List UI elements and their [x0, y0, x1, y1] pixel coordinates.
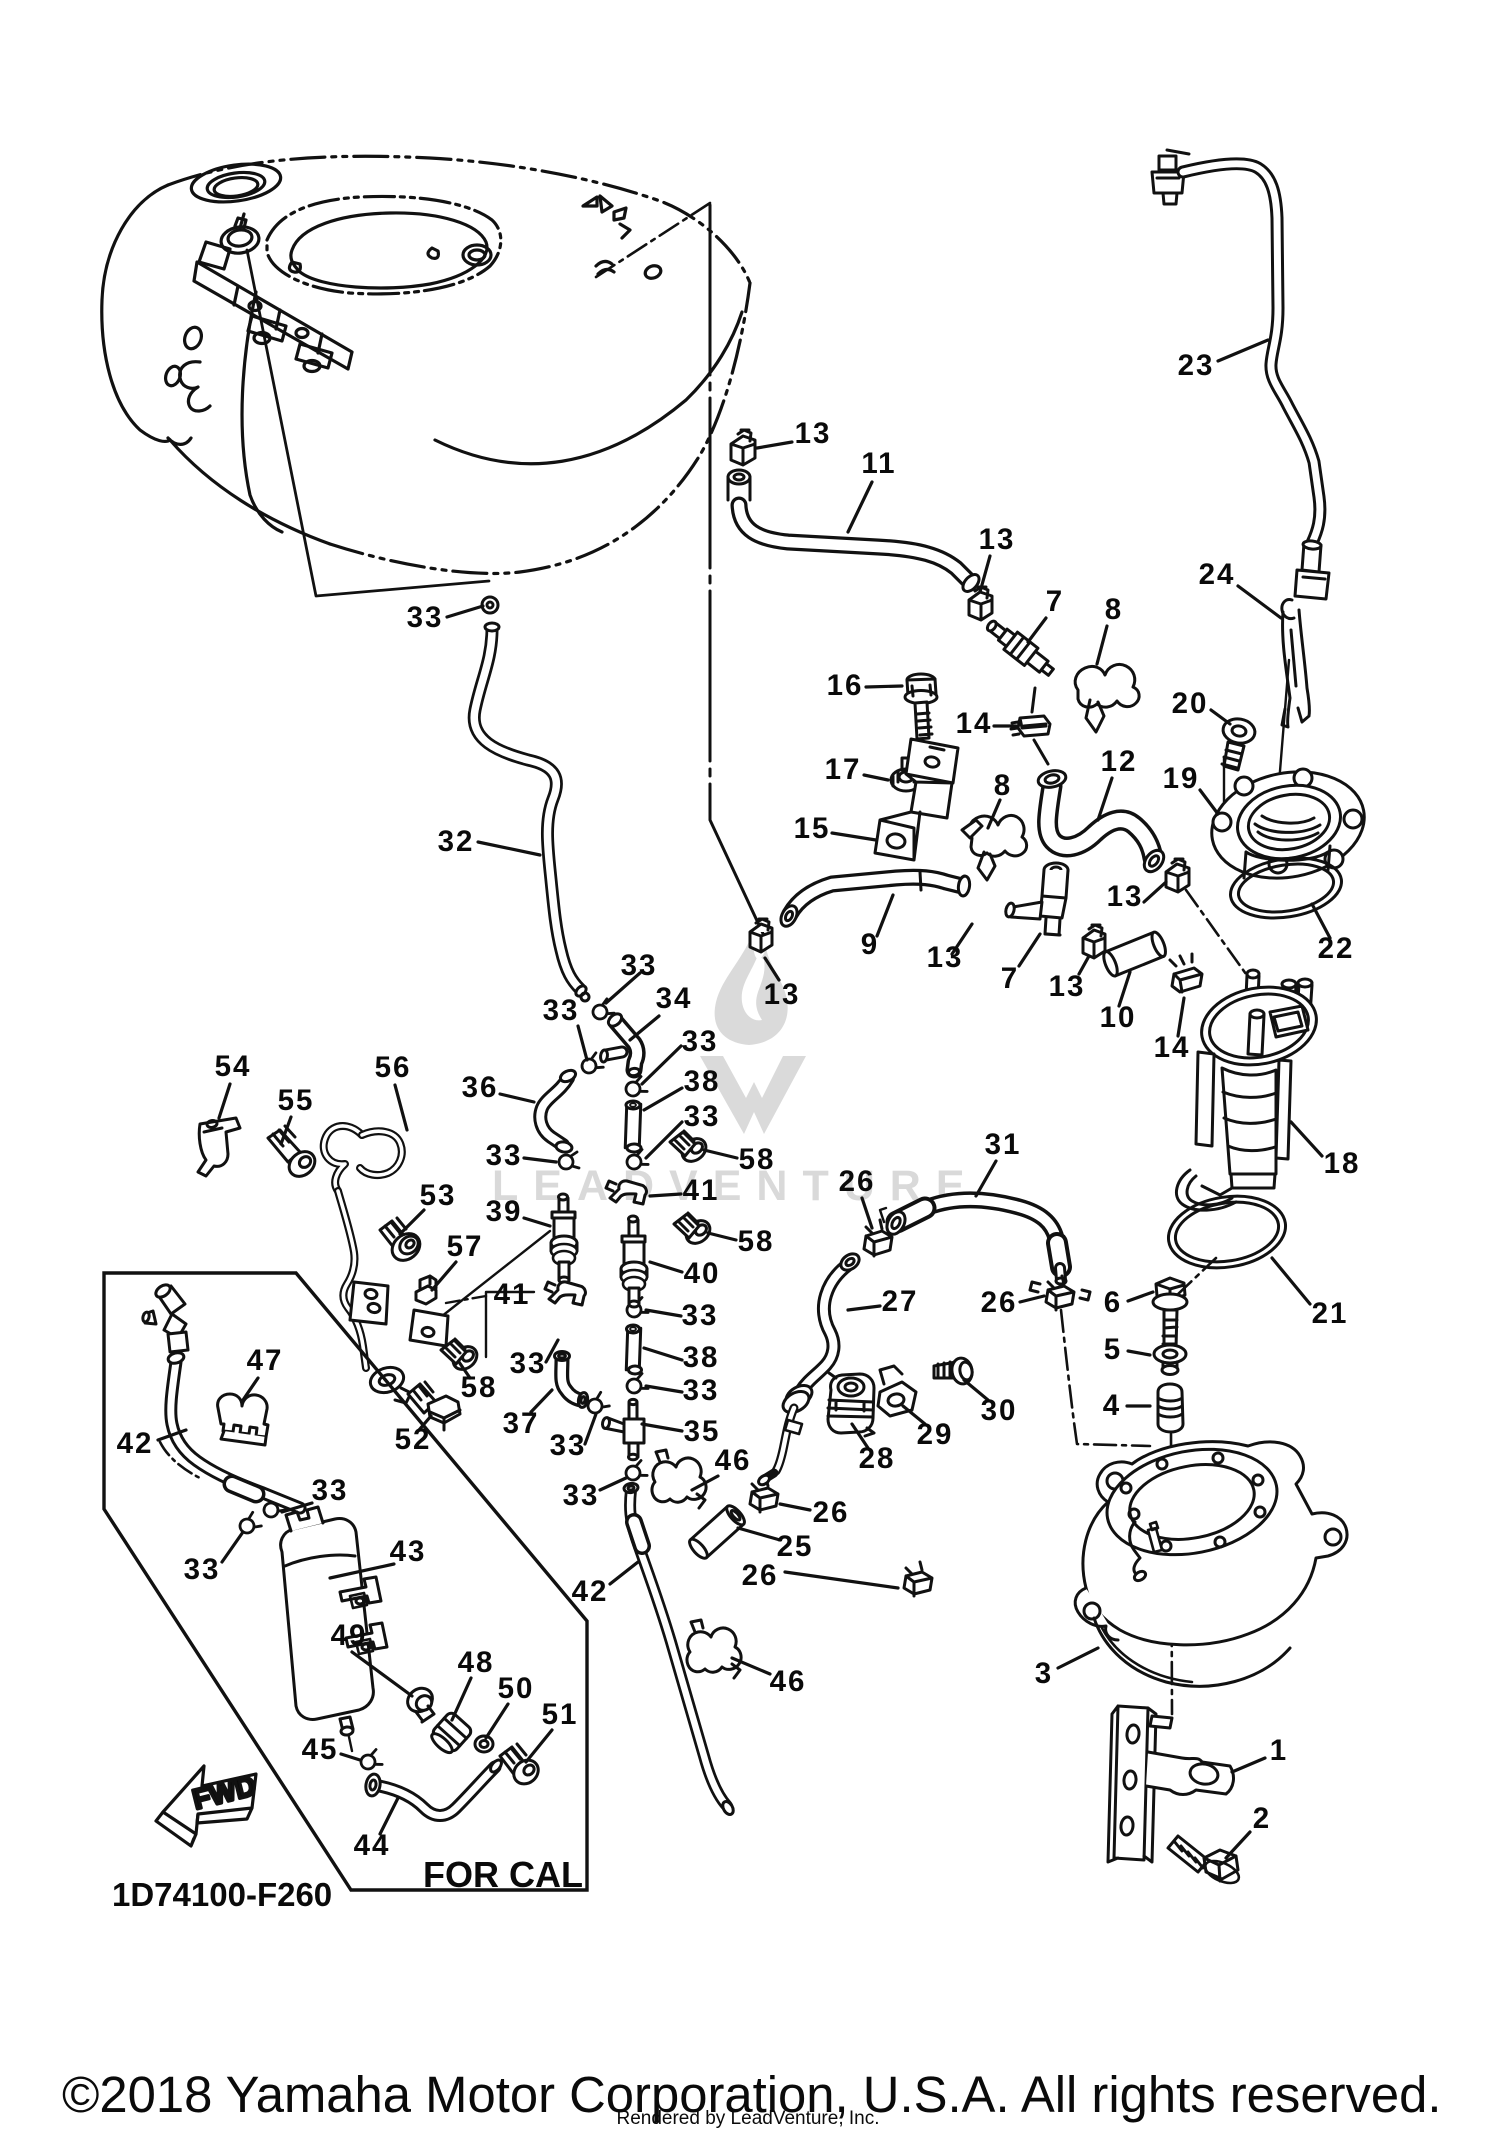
svg-text:55: 55: [278, 1084, 315, 1117]
svg-text:46: 46: [770, 1665, 807, 1698]
svg-text:13: 13: [795, 417, 832, 450]
svg-text:14: 14: [1154, 1031, 1191, 1064]
svg-text:50: 50: [498, 1672, 535, 1705]
svg-text:38: 38: [683, 1341, 720, 1374]
svg-text:Rendered by LeadVenture, Inc.: Rendered by LeadVenture, Inc.: [616, 2108, 879, 2129]
svg-text:8: 8: [1105, 593, 1123, 626]
svg-text:33: 33: [684, 1100, 721, 1133]
svg-text:22: 22: [1318, 932, 1355, 965]
svg-text:14: 14: [956, 707, 993, 740]
svg-text:33: 33: [683, 1374, 720, 1407]
svg-text:33: 33: [486, 1139, 523, 1172]
svg-text:1D74100-F260: 1D74100-F260: [112, 1876, 332, 1913]
svg-text:53: 53: [420, 1179, 457, 1212]
svg-text:42: 42: [117, 1427, 154, 1460]
svg-text:49: 49: [331, 1619, 368, 1652]
svg-text:33: 33: [563, 1479, 600, 1512]
svg-text:16: 16: [827, 669, 864, 702]
svg-text:54: 54: [215, 1050, 252, 1083]
svg-text:4: 4: [1103, 1389, 1121, 1422]
svg-text:33: 33: [682, 1299, 719, 1332]
svg-text:44: 44: [354, 1829, 391, 1862]
svg-text:2: 2: [1253, 1802, 1271, 1835]
svg-text:25: 25: [777, 1530, 814, 1563]
svg-text:24: 24: [1199, 558, 1236, 591]
svg-text:58: 58: [738, 1225, 775, 1258]
svg-text:26: 26: [813, 1496, 850, 1529]
svg-text:41: 41: [494, 1278, 531, 1311]
svg-text:29: 29: [917, 1418, 954, 1451]
svg-text:33: 33: [510, 1347, 547, 1380]
svg-text:58: 58: [739, 1143, 776, 1176]
svg-text:47: 47: [247, 1344, 284, 1377]
svg-text:10: 10: [1100, 1001, 1137, 1034]
svg-text:40: 40: [684, 1257, 721, 1290]
svg-text:18: 18: [1324, 1147, 1361, 1180]
svg-text:28: 28: [859, 1442, 896, 1475]
svg-text:13: 13: [764, 978, 801, 1011]
svg-text:7: 7: [1001, 962, 1019, 995]
svg-text:51: 51: [542, 1698, 579, 1731]
svg-text:8: 8: [994, 769, 1012, 802]
svg-text:48: 48: [458, 1646, 495, 1679]
svg-text:27: 27: [882, 1285, 919, 1318]
svg-text:31: 31: [985, 1128, 1022, 1161]
svg-text:37: 37: [503, 1407, 540, 1440]
svg-text:6: 6: [1104, 1286, 1122, 1319]
svg-text:56: 56: [375, 1051, 412, 1084]
svg-text:58: 58: [461, 1371, 498, 1404]
svg-text:11: 11: [861, 447, 896, 480]
svg-text:9: 9: [861, 928, 879, 961]
svg-text:33: 33: [312, 1474, 349, 1507]
svg-text:43: 43: [390, 1535, 427, 1568]
svg-text:3: 3: [1035, 1657, 1053, 1690]
svg-text:23: 23: [1178, 349, 1215, 382]
svg-text:5: 5: [1104, 1333, 1122, 1366]
svg-text:19: 19: [1163, 762, 1200, 795]
svg-text:46: 46: [715, 1444, 752, 1477]
svg-text:42: 42: [572, 1575, 609, 1608]
svg-text:17: 17: [825, 753, 862, 786]
svg-text:33: 33: [184, 1553, 221, 1586]
svg-text:33: 33: [407, 601, 444, 634]
svg-text:26: 26: [839, 1165, 876, 1198]
svg-text:57: 57: [447, 1230, 484, 1263]
svg-text:13: 13: [979, 523, 1016, 556]
svg-text:36: 36: [462, 1071, 499, 1104]
svg-text:26: 26: [742, 1559, 779, 1592]
svg-text:13: 13: [1107, 880, 1144, 913]
svg-text:33: 33: [682, 1025, 719, 1058]
svg-text:34: 34: [656, 982, 693, 1015]
svg-text:12: 12: [1101, 745, 1138, 778]
svg-text:33: 33: [543, 994, 580, 1027]
svg-text:32: 32: [438, 825, 475, 858]
svg-text:39: 39: [486, 1195, 523, 1228]
svg-text:30: 30: [981, 1394, 1018, 1427]
svg-text:41: 41: [683, 1174, 720, 1207]
svg-text:20: 20: [1172, 687, 1209, 720]
svg-text:21: 21: [1312, 1297, 1349, 1330]
svg-text:15: 15: [794, 812, 831, 845]
svg-text:13: 13: [1049, 970, 1086, 1003]
svg-text:13: 13: [927, 941, 964, 974]
svg-text:7: 7: [1046, 585, 1064, 618]
svg-text:26: 26: [981, 1286, 1018, 1319]
svg-text:45: 45: [302, 1733, 339, 1766]
svg-text:38: 38: [684, 1065, 721, 1098]
svg-text:1: 1: [1270, 1734, 1288, 1767]
svg-text:33: 33: [621, 949, 658, 982]
svg-text:33: 33: [550, 1429, 587, 1462]
